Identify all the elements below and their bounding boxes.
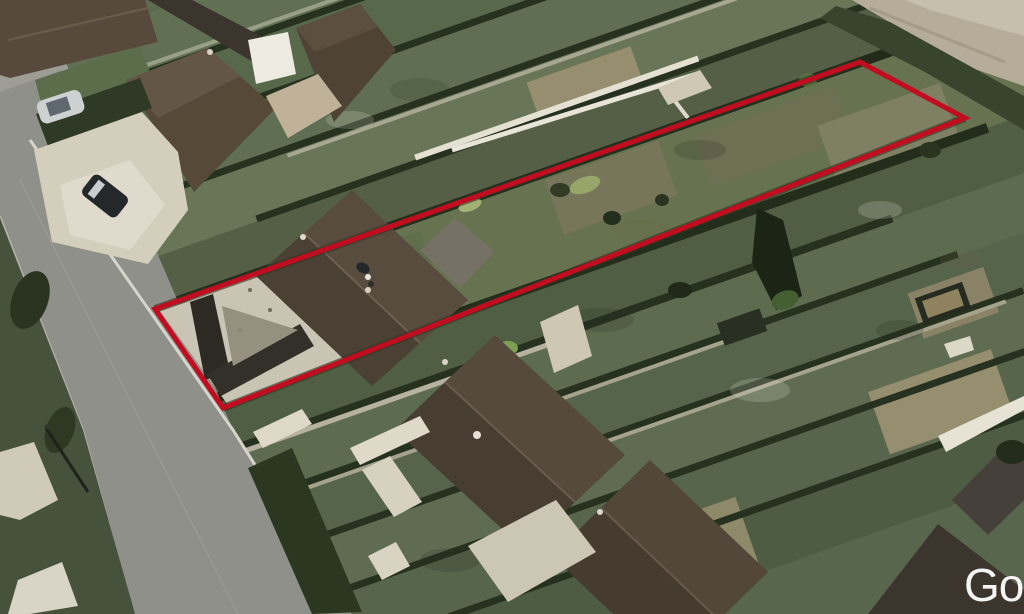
chimney: [300, 234, 306, 240]
chimney: [597, 509, 603, 515]
chimney: [473, 431, 481, 439]
chimney: [442, 359, 448, 365]
chimney: [207, 49, 213, 55]
utility-pole: [45, 425, 50, 430]
satellite-map-canvas[interactable]: Go: [0, 0, 1024, 614]
chimney: [365, 287, 371, 293]
google-watermark: Go: [964, 559, 1023, 611]
map-viewport: Go: [0, 0, 1024, 614]
